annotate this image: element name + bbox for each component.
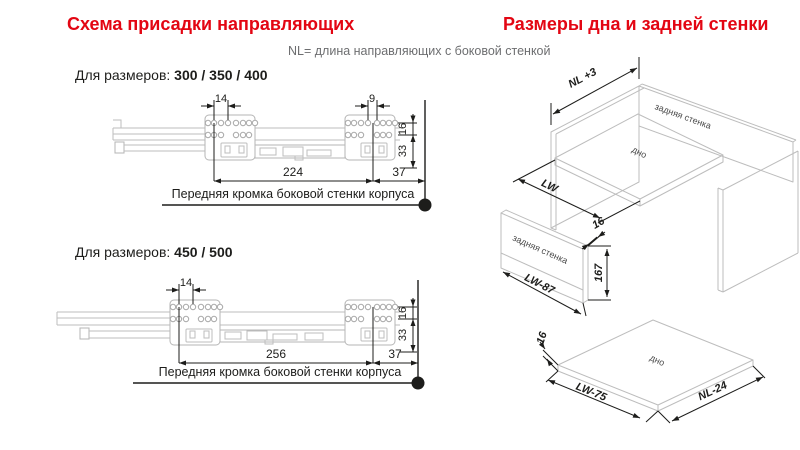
cabinet-back-wall-label: задняя стенка [653,101,712,131]
dim-lw-label: LW [539,177,561,196]
dim-256-label: 256 [266,347,286,361]
dim-back-wall-lw87: LW-87 [503,272,586,316]
dim-14-label: 14 [180,277,192,289]
diagram2-subtitle-sizes: 450 / 500 [174,244,232,260]
diagram2-subtitle: Для размеров: 450 / 500 [75,244,233,260]
dim-37-label: 37 [392,165,406,179]
dim-back-wall-167: 167 [588,246,611,300]
dim-16-label: 16 [397,123,409,135]
back-wall-panel-label: задняя стенка [511,233,569,266]
dim-14-label: 14 [215,93,227,105]
dim-16-label: 16 [397,307,409,319]
dim-224-label: 224 [283,165,303,179]
front-edge-dot [412,377,425,390]
dim-bottom-16: 16 [535,330,558,371]
right-section-title: Размеры дна и задней стенки [503,14,768,35]
cabinet-isometric-diagram: дно задняя стенка NL +3 LW задняя стенка… [490,55,800,450]
bottom-panel-label: дно [648,353,666,369]
rear-mounting-plate [345,300,398,345]
left-section-title: Схема присадки направляющих [67,14,354,35]
bottom-panel: дно 16 LW-75 NL-24 [535,320,765,423]
front-edge-dot [419,199,432,212]
drilling-diagram-300-400: 14 9 16 33 224 37 Передняя кромка [55,90,445,218]
dim-33-label: 33 [397,145,409,157]
diagram1-subtitle-prefix: Для размеров: [75,67,174,83]
back-wall-16-label: 16 [590,215,607,232]
catalog-page: Схема присадки направляющих Размеры дна … [0,0,800,450]
dim-bottom-lw75: LW-75 [546,371,658,422]
diagram1-subtitle-sizes: 300 / 350 / 400 [174,67,267,83]
back-wall-167-label: 167 [593,263,605,282]
dim-37-label: 37 [388,347,402,361]
dim-33-label: 33 [397,329,409,341]
dim-16-33: 16 33 [397,114,417,168]
front-mounting-plate [205,115,258,160]
diagram1-subtitle: Для размеров: 300 / 350 / 400 [75,67,268,83]
bottom-16-label: 16 [535,330,550,346]
diagram2-subtitle-prefix: Для размеров: [75,244,174,260]
dim-bottom-nl24: NL-24 [658,366,765,423]
dim-nl3-label: NL +3 [567,66,599,91]
dim-nl-plus-3: NL +3 [551,57,639,125]
front-edge-caption: Передняя кромка боковой стенки корпуса [172,187,415,201]
dim-9-label: 9 [369,93,375,105]
cabinet-bottom-label: дно [630,144,648,160]
front-mounting-plate [170,300,223,345]
front-edge-caption: Передняя кромка боковой стенки корпуса [159,365,402,379]
rear-mounting-plate [345,115,398,160]
drilling-diagram-450-500: 14 16 33 256 37 Передняя кромка боковой … [55,278,445,400]
bottom-nl24-label: NL-24 [696,379,729,403]
